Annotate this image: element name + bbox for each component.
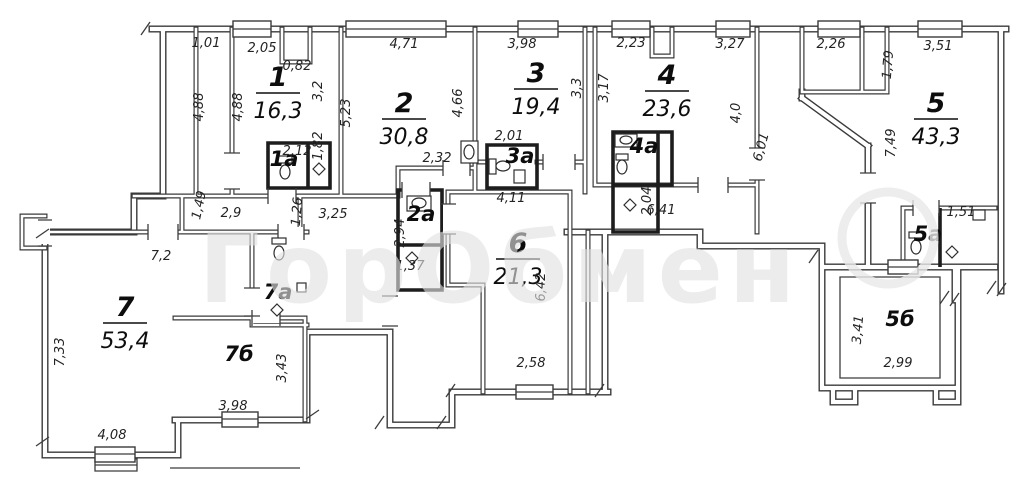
dimension-label: 3,27 bbox=[716, 37, 746, 52]
dimension-label: 4,88 bbox=[231, 93, 246, 122]
dimension-label: 3,98 bbox=[508, 37, 537, 52]
dimension-label: 3,2 bbox=[311, 81, 326, 102]
dimension-label: 3,98 bbox=[219, 399, 248, 414]
dimension-label: 5,23 bbox=[339, 99, 354, 128]
room-4-number: 4 bbox=[657, 60, 677, 91]
toilet-icon bbox=[616, 154, 628, 174]
dimension-label: 7,49 bbox=[884, 129, 899, 158]
floor-plan: 116,3230,8319,4423,6543,3621,3753,4 1а2а… bbox=[0, 0, 1024, 501]
room-5b-label: 5б bbox=[885, 307, 914, 331]
dimension-label: 3,41 bbox=[850, 315, 867, 345]
dimension-label: 2,12 bbox=[283, 144, 312, 159]
room-5-label: 543,3 bbox=[912, 88, 961, 150]
room-1-area: 16,3 bbox=[254, 99, 303, 124]
sink-icon bbox=[461, 141, 478, 163]
room-5-number: 5 bbox=[927, 88, 946, 119]
room-7-label: 753,4 bbox=[101, 292, 150, 354]
room-3-label: 319,4 bbox=[512, 58, 561, 120]
room-4-area: 23,6 bbox=[643, 97, 692, 122]
dimension-label: 6,01 bbox=[751, 131, 773, 163]
dimension-label: 3,43 bbox=[275, 354, 290, 383]
dimension-label: 4,66 bbox=[451, 89, 466, 118]
room-3a-label: 3а bbox=[506, 144, 535, 168]
dimension-label: 1,51 bbox=[947, 205, 976, 220]
dimension-label: 2,23 bbox=[617, 36, 646, 51]
room-2-number: 2 bbox=[395, 88, 414, 119]
room-7b-label: 7б bbox=[224, 342, 253, 366]
dimension-label: 2,26 bbox=[817, 37, 846, 52]
dimension-label: 4,11 bbox=[497, 191, 526, 206]
room-3-number: 3 bbox=[527, 58, 546, 89]
room-5-area: 43,3 bbox=[912, 125, 961, 150]
room-7-area: 53,4 bbox=[101, 329, 150, 354]
floor-plan-page: 116,3230,8319,4423,6543,3621,3753,4 1а2а… bbox=[0, 0, 1024, 501]
cabinet-icon bbox=[514, 170, 525, 183]
dimension-label: 4,08 bbox=[98, 428, 127, 443]
dimension-label: 7,33 bbox=[53, 338, 68, 367]
dimension-label: 1,82 bbox=[311, 132, 326, 161]
dimension-label: 4,88 bbox=[192, 93, 207, 122]
dimension-label: 1,79 bbox=[880, 50, 897, 80]
watermark-text: ГорОбмен bbox=[199, 213, 801, 325]
dimension-label: 2,58 bbox=[517, 356, 546, 371]
room-3-area: 19,4 bbox=[512, 95, 561, 120]
room-2-area: 30,8 bbox=[380, 125, 429, 150]
dimension-label: 2,05 bbox=[248, 41, 277, 56]
room-7-number: 7 bbox=[116, 292, 135, 323]
dimension-label: 4,0 bbox=[729, 103, 744, 124]
dimension-label: 3,51 bbox=[924, 39, 953, 54]
radiator-icon bbox=[313, 163, 325, 175]
radiator-icon bbox=[946, 246, 958, 258]
dimension-label: 7,2 bbox=[151, 249, 172, 264]
dimension-label: 2,32 bbox=[423, 151, 452, 166]
radiator-icon bbox=[624, 199, 636, 211]
dimension-label: 2,99 bbox=[884, 356, 913, 371]
dimension-label: 4,71 bbox=[390, 37, 419, 52]
room-4a-label: 4а bbox=[629, 134, 659, 158]
room-2-label: 230,8 bbox=[380, 88, 429, 150]
dimension-label: 2,01 bbox=[495, 129, 524, 144]
dimension-label: 0,82 bbox=[283, 59, 312, 74]
room-4-label: 423,6 bbox=[643, 60, 692, 122]
dimension-label: 1,01 bbox=[192, 36, 221, 51]
dimension-label: 3,17 bbox=[597, 73, 612, 103]
dimension-label: 3,3 bbox=[570, 78, 585, 99]
